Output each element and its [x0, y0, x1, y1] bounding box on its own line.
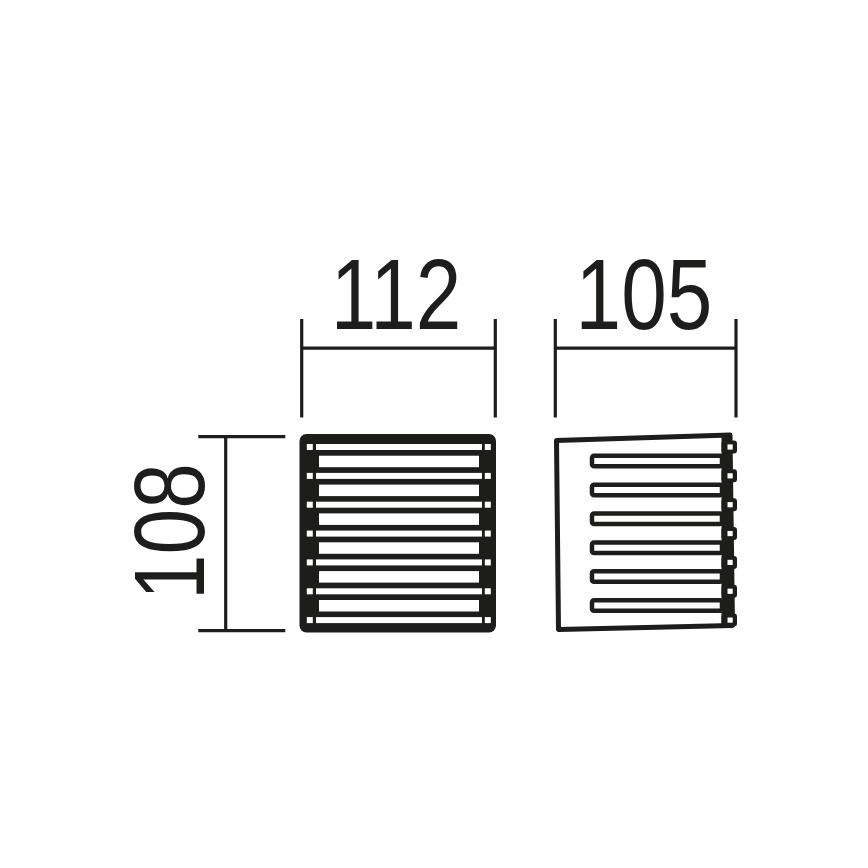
wide-slot — [319, 513, 479, 525]
fin — [592, 514, 722, 525]
screw-hole — [728, 444, 733, 449]
screw-hole — [485, 531, 491, 537]
screw-hole — [728, 473, 733, 478]
screw-hole — [485, 473, 491, 479]
screw-hole — [728, 589, 733, 594]
thin-slot — [316, 617, 482, 623]
side-view — [557, 435, 738, 630]
screw-hole — [728, 502, 733, 507]
screw-hole — [485, 588, 491, 594]
thin-slot — [316, 502, 482, 508]
front-view — [300, 434, 497, 633]
screw-hole — [728, 560, 733, 565]
thin-slot — [316, 473, 482, 479]
screw-hole — [728, 618, 733, 623]
thin-slot — [316, 444, 482, 450]
fin — [592, 542, 722, 553]
screw-hole — [728, 531, 733, 536]
technical-drawing: 112 105 108 — [0, 0, 868, 868]
fin — [592, 485, 722, 496]
dimension-label-front-width: 112 — [331, 238, 462, 350]
screw-hole — [307, 588, 313, 594]
thin-slot — [316, 559, 482, 565]
screw-hole — [485, 444, 491, 450]
screw-hole — [307, 502, 313, 508]
wide-slot — [319, 571, 479, 583]
fin — [592, 571, 722, 582]
thin-slot — [316, 531, 482, 537]
drawing-canvas: 112 105 108 — [0, 0, 868, 868]
screw-hole — [307, 444, 313, 450]
dimension-label-height: 108 — [113, 463, 225, 600]
thin-slot — [316, 588, 482, 594]
fin — [592, 456, 722, 467]
screw-hole — [307, 531, 313, 537]
screw-hole — [307, 559, 313, 565]
wide-slot — [319, 456, 479, 468]
wide-slot — [319, 542, 479, 554]
fin — [592, 600, 722, 611]
screw-hole — [485, 559, 491, 565]
dimension-label-side-width: 105 — [576, 238, 713, 350]
screw-hole — [307, 473, 313, 479]
screw-hole — [307, 617, 313, 623]
wide-slot — [319, 600, 479, 612]
wide-slot — [319, 485, 479, 497]
screw-hole — [485, 617, 491, 623]
screw-hole — [485, 502, 491, 508]
